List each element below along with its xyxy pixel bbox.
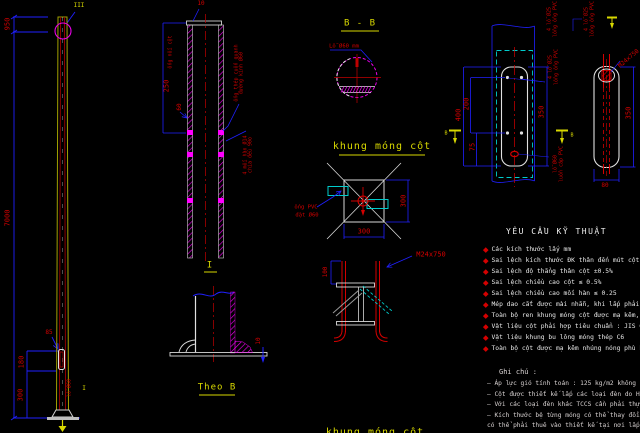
tech-item-text: Toàn bộ cột được mạ kẽm nhúng nóng phù h… <box>492 343 640 354</box>
tech-item: Toàn bộ cột được mạ kẽm nhúng nóng phù h… <box>484 343 640 354</box>
tech-item-text: Sai lệch độ thẳng thân cột ±0.5% <box>492 266 613 277</box>
tech-item: Sai lệch chiều cao cột ≤ 0.5% <box>484 277 640 288</box>
detail-i-dim-10: 10 <box>256 337 262 344</box>
tech-item-text: Vật liệu khung bu lông móng thép C6 <box>492 332 625 343</box>
tech-item-text: Các kích thước lấy mm <box>492 244 572 255</box>
dim-60: 60 <box>177 103 183 110</box>
diamond-bullet-icon <box>483 280 488 285</box>
diamond-bullet-icon <box>483 335 488 340</box>
section-marker-b-right <box>556 131 568 145</box>
dim-950: 950 <box>5 18 12 31</box>
diamond-bullet-icon <box>483 291 488 296</box>
plate-label-d2: luồn cáp PVC <box>560 146 565 182</box>
marker-b-right-label: B <box>570 134 573 139</box>
tech-item-text: Sai lệch chiều cao mối hàn ≤ 0.25 <box>492 288 617 299</box>
side-dim-80: 80 <box>601 183 608 189</box>
note-line: – Với các loại đèn khác TCCS cần phải th… <box>487 400 640 411</box>
theo-b-title: Theo B <box>198 384 237 393</box>
note-line: – Kích thước bệ từng móng có thể thay đổ… <box>487 411 640 422</box>
marker-b-left-label: B <box>444 132 447 137</box>
tech-item: Sai lệch kích thước ĐK thân đến mút cột … <box>484 255 640 266</box>
section-marker-top <box>607 18 617 30</box>
note-a-line2: đường kính Ø60 <box>240 52 245 94</box>
tech-item: Mép dao cắt được mài nhẵn, khi lắp phải … <box>484 299 640 310</box>
section-marker-b-left <box>449 131 461 145</box>
pole-elevation-drawing <box>11 12 80 432</box>
tech-item: Toàn bộ ren khung móng cột được mạ kẽm, … <box>484 310 640 321</box>
note-line: có thể phải thuê vào thiết kế tại nơi lắ… <box>487 421 640 432</box>
dim-300: 300 <box>18 389 25 402</box>
tech-requirements-list: Các kích thước lấy mm Sai lệch kích thướ… <box>484 244 640 354</box>
plate-dim-350: 350 <box>539 106 546 119</box>
foundation-plan-title: khung móng cột <box>333 142 431 152</box>
section-bb-title: B - B <box>344 20 376 29</box>
plate-dim-400: 400 <box>456 109 463 122</box>
anchor-nut <box>602 71 611 81</box>
plan-dim-bottom: 300 <box>358 229 371 236</box>
tech-item-text: Mép dao cắt được mài nhẵn, khi lắp phải … <box>492 299 640 310</box>
diamond-bullet-icon <box>483 247 488 252</box>
anchor-bolt-detail-drawing <box>331 256 412 342</box>
tech-item: Vật liệu khung bu lông móng thép C6 <box>484 332 640 343</box>
tech-item-text: Vật liệu cột phải hợp tiêu chuẩn : JIS G… <box>492 321 640 332</box>
down-arrow-icon <box>59 426 67 432</box>
diamond-bullet-icon <box>483 346 488 351</box>
tech-item-text: Sai lệch chiều cao cột ≤ 0.5% <box>492 277 602 288</box>
tech-requirements-title: YÊU CẦU KỸ THUẬT <box>506 227 640 236</box>
cad-drawing-canvas: III 950 7000 85 180 300 lỗ Ø60 I 10 ống … <box>0 0 640 433</box>
anchor-detail-title: khung móng cột <box>326 428 424 433</box>
tech-item: Vật liệu cột phải hợp tiêu chuẩn : JIS G… <box>484 321 640 332</box>
plate-dim-75: 75 <box>470 143 477 151</box>
anchor-dim-100: 100 <box>323 267 329 278</box>
handhole-note: lỗ Ø60 <box>68 379 73 397</box>
side-dim-350: 350 <box>626 107 633 120</box>
diamond-bullet-icon <box>483 324 488 329</box>
tech-requirements-block: YÊU CẦU KỸ THUẬT Các kích thước lấy mm S… <box>484 227 640 354</box>
note-line: – Áp lực gió tính toán : 125 kg/m2 không… <box>487 379 640 390</box>
dim-180: 180 <box>19 356 26 369</box>
note-line: – Cột được thiết kế lắp các loại đèn do … <box>487 390 640 401</box>
plate-label-c2: lồng ống PVC <box>555 49 560 85</box>
diamond-bullet-icon <box>483 313 488 318</box>
notes-block: Ghi chú : – Áp lực gió tính toán : 125 k… <box>487 368 640 432</box>
dim-cap-10: 10 <box>197 1 204 7</box>
tech-item: Các kích thước lấy mm <box>484 244 640 255</box>
dim-85: 85 <box>45 330 52 336</box>
dim-250: 250 <box>164 80 171 93</box>
plate-label-b2: lồng ống PVC <box>591 1 596 37</box>
diamond-bullet-icon <box>483 258 488 263</box>
pvc-note-line2: đặt Ø60 <box>295 213 318 219</box>
detail-i-title: I <box>207 262 213 271</box>
plate-plan-drawing <box>449 18 617 188</box>
tech-item: Sai lệch chiều cao mối hàn ≤ 0.25 <box>484 288 640 299</box>
detail-callout-circle <box>55 23 71 39</box>
detail-i-callout: I <box>82 386 86 392</box>
notes-title: Ghi chú : <box>499 368 640 376</box>
tech-item-text: Toàn bộ ren khung móng cột được mạ kẽm, … <box>492 310 640 321</box>
foundation-plan-drawing <box>317 155 425 239</box>
anchor-bolt-label: M24x750 <box>416 252 446 259</box>
diamond-bullet-icon <box>483 269 488 274</box>
note-b-line2: chia đều 90o <box>249 137 254 173</box>
plate-dim-200: 200 <box>464 98 471 111</box>
base-plate <box>47 417 79 420</box>
pvc-note-line1: ống PVC <box>294 205 317 211</box>
diamond-bullet-icon <box>483 302 488 307</box>
bb-hole-note: Lỗ Ø60 mm <box>329 44 359 50</box>
tech-item: Sai lệch độ thẳng thân cột ±0.5% <box>484 266 640 277</box>
note-sleeve: ống nối cột <box>169 35 174 68</box>
detail-i-drawing <box>170 272 267 395</box>
plate-label-a2: lồng ống PVC <box>554 1 559 37</box>
plan-dim-right: 300 <box>401 195 408 208</box>
tech-item-text: Sai lệch kích thước ĐK thân đến mút cột … <box>492 255 640 266</box>
pole-detail-callout: III <box>74 3 85 9</box>
dim-7000: 7000 <box>5 210 12 227</box>
section-bb-drawing <box>330 31 381 103</box>
